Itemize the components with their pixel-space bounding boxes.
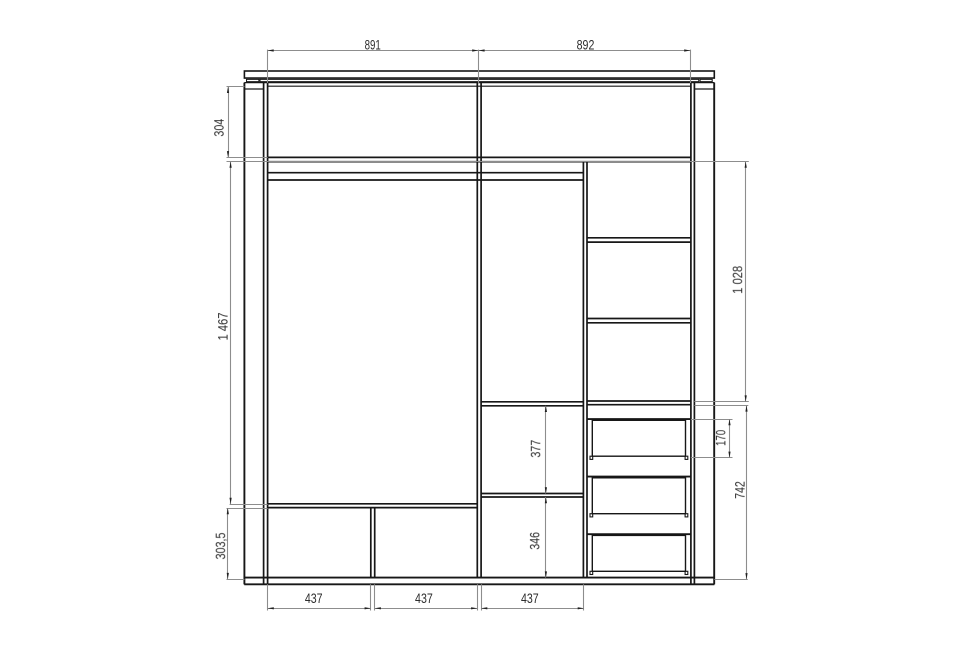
svg-text:170: 170 bbox=[712, 430, 728, 446]
svg-text:346: 346 bbox=[526, 532, 542, 550]
svg-text:1 028: 1 028 bbox=[729, 266, 745, 294]
svg-text:304: 304 bbox=[211, 119, 227, 137]
svg-text:892: 892 bbox=[577, 36, 595, 52]
svg-text:437: 437 bbox=[305, 590, 323, 606]
svg-text:1 467: 1 467 bbox=[215, 312, 231, 340]
svg-text:437: 437 bbox=[521, 590, 539, 606]
svg-text:437: 437 bbox=[415, 590, 433, 606]
svg-text:742: 742 bbox=[732, 481, 748, 499]
svg-text:891: 891 bbox=[365, 36, 381, 52]
svg-text:303,5: 303,5 bbox=[212, 532, 228, 559]
svg-text:377: 377 bbox=[528, 440, 544, 458]
